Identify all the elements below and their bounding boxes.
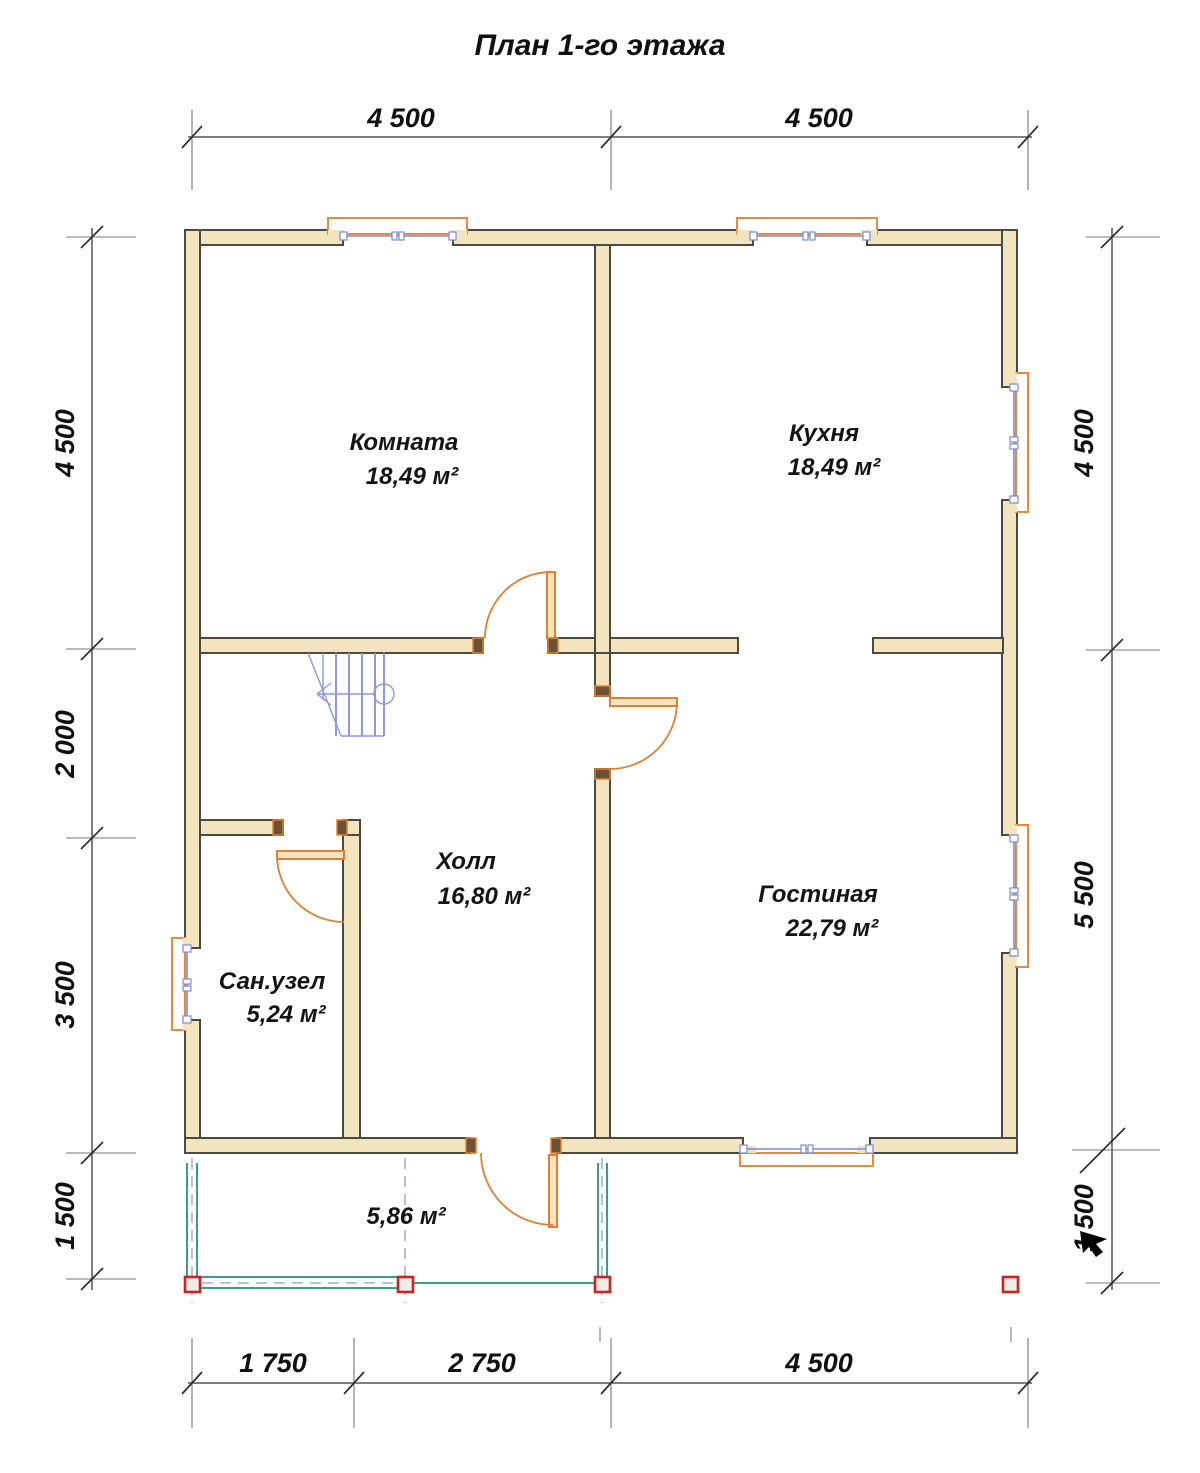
plan-title: План 1-го этажа bbox=[474, 29, 725, 62]
porch-structure bbox=[185, 1158, 1018, 1342]
dimension-bottom: 1 750 2 750 4 500 bbox=[182, 1338, 1038, 1428]
room-name-holl: Холл bbox=[434, 848, 496, 875]
room-name-sanuzel: Сан.узел bbox=[219, 968, 326, 995]
room-area-gostinaya: 22,79 м² bbox=[785, 915, 879, 942]
window-living-bottom bbox=[740, 1145, 873, 1166]
dim-bottom-1: 1 750 bbox=[239, 1348, 307, 1378]
dim-top-1: 4 500 bbox=[366, 103, 435, 133]
room-area-komnata: 18,49 м² bbox=[366, 463, 459, 490]
dim-top-2: 4 500 bbox=[784, 103, 853, 133]
window-sanuzel-left bbox=[172, 938, 191, 1030]
floor-plan-page: План 1-го этажа 4 500 4 500 1 750 2 750 … bbox=[0, 0, 1200, 1473]
floor-plan-drawing: План 1-го этажа 4 500 4 500 1 750 2 750 … bbox=[0, 0, 1200, 1473]
dim-right-2: 5 500 bbox=[1069, 861, 1099, 929]
dimension-right: 4 500 5 500 1 500 bbox=[1069, 226, 1160, 1294]
dim-bottom-3: 4 500 bbox=[784, 1348, 853, 1378]
door-room bbox=[473, 572, 558, 653]
dim-left-2: 2 000 bbox=[50, 710, 80, 779]
room-area-terrace: 5,86 м² bbox=[366, 1203, 446, 1230]
stairs bbox=[308, 653, 394, 736]
room-name-komnata: Комната bbox=[350, 429, 459, 456]
door-sanuzel bbox=[273, 820, 347, 922]
window-living-right bbox=[1009, 825, 1028, 967]
porch-column bbox=[398, 1277, 413, 1292]
dim-left-4: 1 500 bbox=[50, 1182, 80, 1250]
window-kitchen-top bbox=[737, 218, 877, 240]
dimension-top: 4 500 4 500 bbox=[182, 103, 1038, 190]
room-labels: Комната 18,49 м² Кухня 18,49 м² Холл 16,… bbox=[219, 420, 882, 1230]
dim-bottom-2: 2 750 bbox=[447, 1348, 516, 1378]
dim-right-1: 4 500 bbox=[1069, 409, 1099, 478]
dimension-left: 4 500 2 000 3 500 1 500 bbox=[50, 226, 136, 1290]
room-area-holl: 16,80 м² bbox=[438, 883, 531, 910]
porch-column bbox=[185, 1277, 200, 1292]
room-area-sanuzel: 5,24 м² bbox=[246, 1001, 326, 1028]
dim-left-1: 4 500 bbox=[50, 409, 80, 478]
window-room-top bbox=[328, 218, 467, 240]
door-living bbox=[595, 686, 677, 779]
window-kitchen-right bbox=[1009, 373, 1028, 512]
porch-column bbox=[595, 1277, 610, 1292]
room-area-kuhnya: 18,49 м² bbox=[788, 454, 881, 481]
door-entrance bbox=[466, 1138, 561, 1227]
porch-column bbox=[1003, 1277, 1018, 1292]
dim-left-3: 3 500 bbox=[50, 961, 80, 1029]
room-name-gostinaya: Гостиная bbox=[758, 881, 878, 908]
room-name-kuhnya: Кухня bbox=[789, 420, 859, 447]
